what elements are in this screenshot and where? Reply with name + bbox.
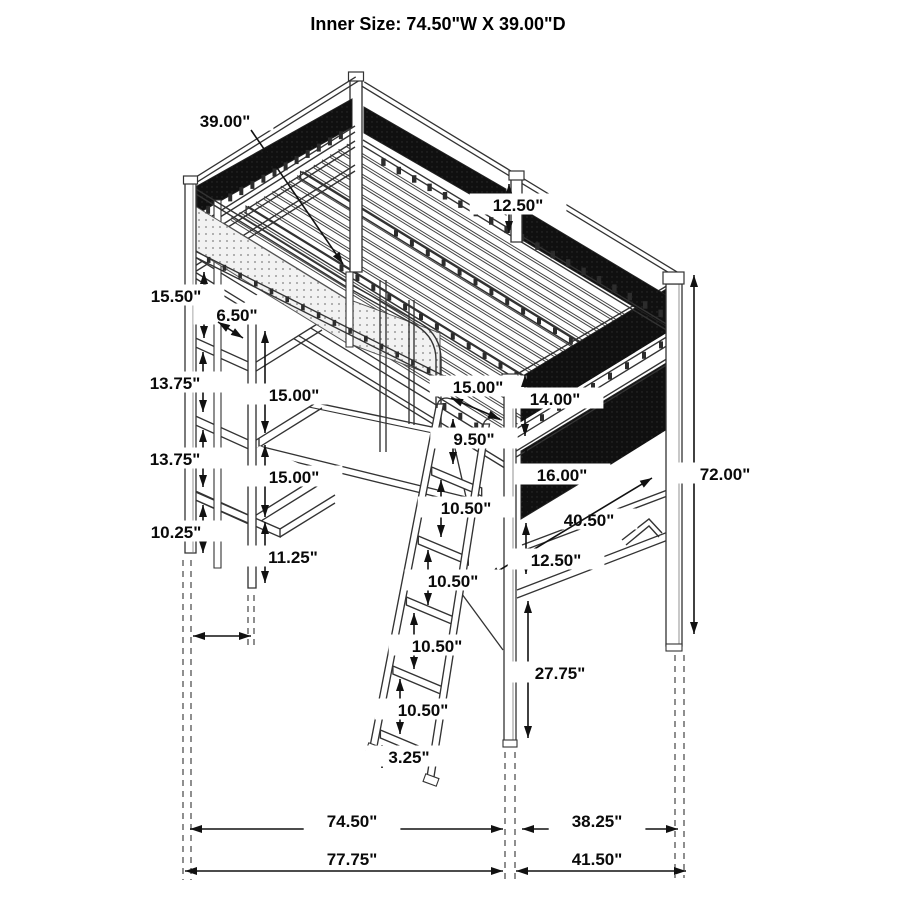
svg-text:15.00": 15.00" bbox=[453, 378, 504, 397]
svg-text:14.00": 14.00" bbox=[530, 390, 581, 409]
svg-text:27.75": 27.75" bbox=[535, 664, 586, 683]
svg-text:16.00": 16.00" bbox=[537, 466, 588, 485]
svg-text:74.50": 74.50" bbox=[327, 812, 378, 831]
svg-text:15.50": 15.50" bbox=[151, 287, 202, 306]
svg-text:10.50": 10.50" bbox=[398, 701, 449, 720]
svg-text:12.50": 12.50" bbox=[493, 196, 544, 215]
svg-text:38.25": 38.25" bbox=[572, 812, 623, 831]
svg-text:9.50": 9.50" bbox=[453, 430, 494, 449]
svg-text:15.00": 15.00" bbox=[269, 386, 320, 405]
svg-text:11.25": 11.25" bbox=[268, 548, 318, 567]
svg-text:10.25": 10.25" bbox=[151, 523, 202, 542]
svg-text:15.00": 15.00" bbox=[269, 468, 320, 487]
svg-text:10.50": 10.50" bbox=[441, 499, 492, 518]
svg-text:10.50": 10.50" bbox=[412, 637, 463, 656]
svg-text:13.75": 13.75" bbox=[150, 374, 201, 393]
svg-text:3.25": 3.25" bbox=[388, 748, 429, 767]
svg-text:6.50": 6.50" bbox=[216, 306, 257, 325]
svg-text:12.50": 12.50" bbox=[531, 551, 582, 570]
svg-text:41.50": 41.50" bbox=[572, 850, 623, 869]
svg-text:10.50": 10.50" bbox=[428, 572, 479, 591]
svg-text:39.00": 39.00" bbox=[200, 112, 251, 131]
svg-text:13.75": 13.75" bbox=[150, 450, 201, 469]
svg-text:Inner Size: 74.50"W X 39.00"D: Inner Size: 74.50"W X 39.00"D bbox=[310, 14, 565, 34]
svg-text:72.00": 72.00" bbox=[700, 465, 751, 484]
svg-text:77.75": 77.75" bbox=[327, 850, 378, 869]
